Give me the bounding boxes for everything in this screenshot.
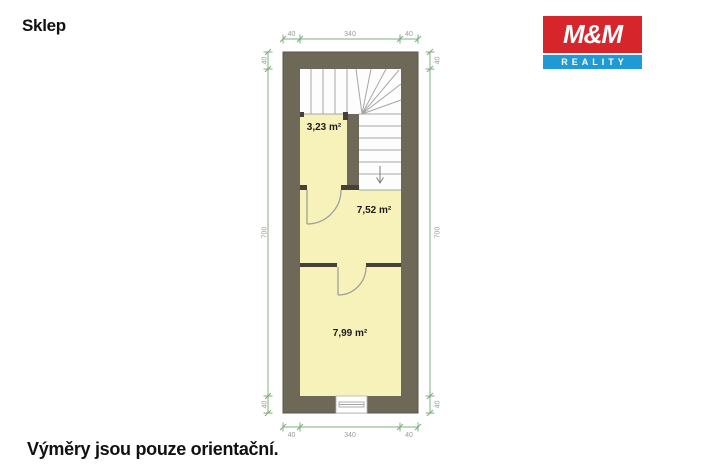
dimension-bottom: 40 340 40	[280, 423, 421, 440]
partition-wall-lower	[300, 263, 401, 267]
room-area-label: 3,23 m²	[307, 122, 342, 133]
dimension-label: 40	[262, 57, 269, 65]
dimension-label: 40	[262, 401, 269, 409]
dimension-label: 40	[435, 57, 442, 65]
dimension-top: 40 340 40	[280, 31, 421, 44]
stub-wall	[347, 114, 359, 190]
disclaimer-text: Výměry jsou pouze orientační.	[27, 439, 278, 460]
dimension-right: 40 700 40	[426, 49, 442, 416]
door-jamb	[343, 112, 348, 120]
partition-wall-upper	[300, 185, 359, 190]
dimension-label: 40	[288, 31, 296, 38]
room-area-label: 7,52 m²	[357, 205, 392, 216]
window	[336, 396, 367, 413]
dimension-label: 40	[288, 432, 296, 439]
dimension-label: 700	[262, 227, 269, 239]
room-area-label: 7,99 m²	[333, 328, 368, 339]
dimension-label: 40	[405, 31, 413, 38]
door-jamb	[300, 112, 304, 117]
floor-plan: 3,23 m² 7,52 m² 7,99 m² 40 340 40 40 340…	[0, 0, 702, 468]
dimension-left: 40 700 40	[262, 49, 273, 416]
dimension-label: 340	[344, 31, 356, 38]
dimension-label: 340	[344, 432, 356, 439]
dimension-label: 700	[435, 227, 442, 239]
dimension-label: 40	[435, 401, 442, 409]
dimension-label: 40	[405, 432, 413, 439]
